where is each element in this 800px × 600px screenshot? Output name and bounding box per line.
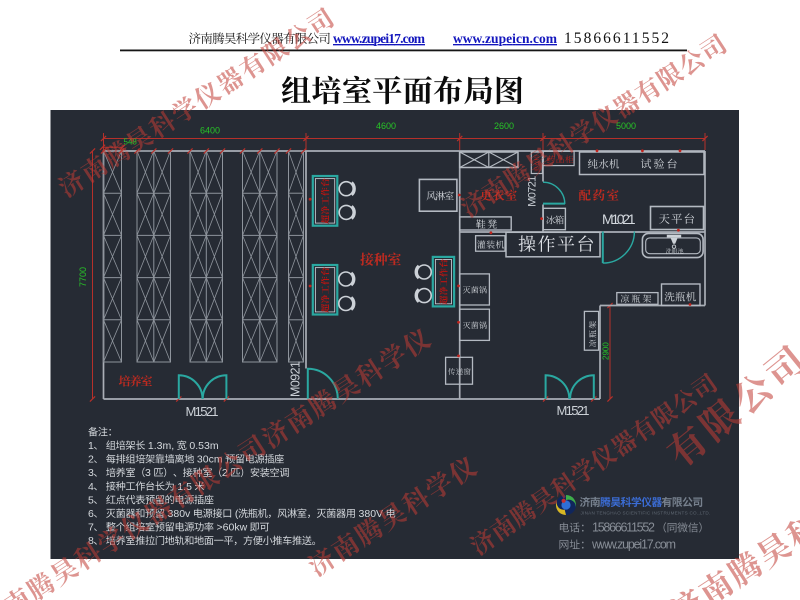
svg-text:7: 7 — [88, 522, 94, 534]
svg-text:M1521: M1521 — [557, 403, 590, 418]
svg-text:2900: 2900 — [602, 342, 611, 360]
svg-text:6400: 6400 — [200, 126, 220, 136]
svg-text:3: 3 — [88, 467, 94, 479]
svg-text:5000: 5000 — [616, 121, 636, 131]
svg-text:1.3m,: 1.3m, — [145, 440, 177, 452]
svg-text:0.53m: 0.53m — [187, 440, 219, 452]
svg-text:2600: 2600 — [494, 121, 514, 131]
svg-text:5: 5 — [88, 494, 94, 506]
svg-text:3: 3 — [145, 467, 154, 479]
svg-text:(: ( — [232, 508, 239, 520]
svg-text:2: 2 — [88, 454, 94, 466]
svg-text:15866611552: 15866611552 — [592, 521, 655, 535]
svg-text:M1521: M1521 — [186, 404, 219, 419]
svg-text:4600: 4600 — [376, 121, 396, 131]
svg-text:www.zupei17.com: www.zupei17.com — [333, 31, 426, 46]
svg-text:>60kw: >60kw — [214, 522, 250, 534]
svg-text:www.zupei17.com: www.zupei17.com — [591, 538, 676, 552]
svg-text:4: 4 — [88, 481, 94, 493]
svg-text:6: 6 — [88, 508, 94, 520]
svg-text:7700: 7700 — [78, 267, 88, 287]
svg-text:M1021: M1021 — [602, 211, 636, 227]
svg-text:15866611552: 15866611552 — [564, 30, 669, 47]
svg-text:www.zupeicn.com: www.zupeicn.com — [453, 31, 558, 46]
svg-text:M0921: M0921 — [289, 361, 303, 397]
svg-text:JINAN TENGHAO SCIENTIFIC INSTR: JINAN TENGHAO SCIENTIFIC INSTRUMENTS CO.… — [581, 511, 711, 516]
svg-text:1: 1 — [88, 440, 94, 452]
